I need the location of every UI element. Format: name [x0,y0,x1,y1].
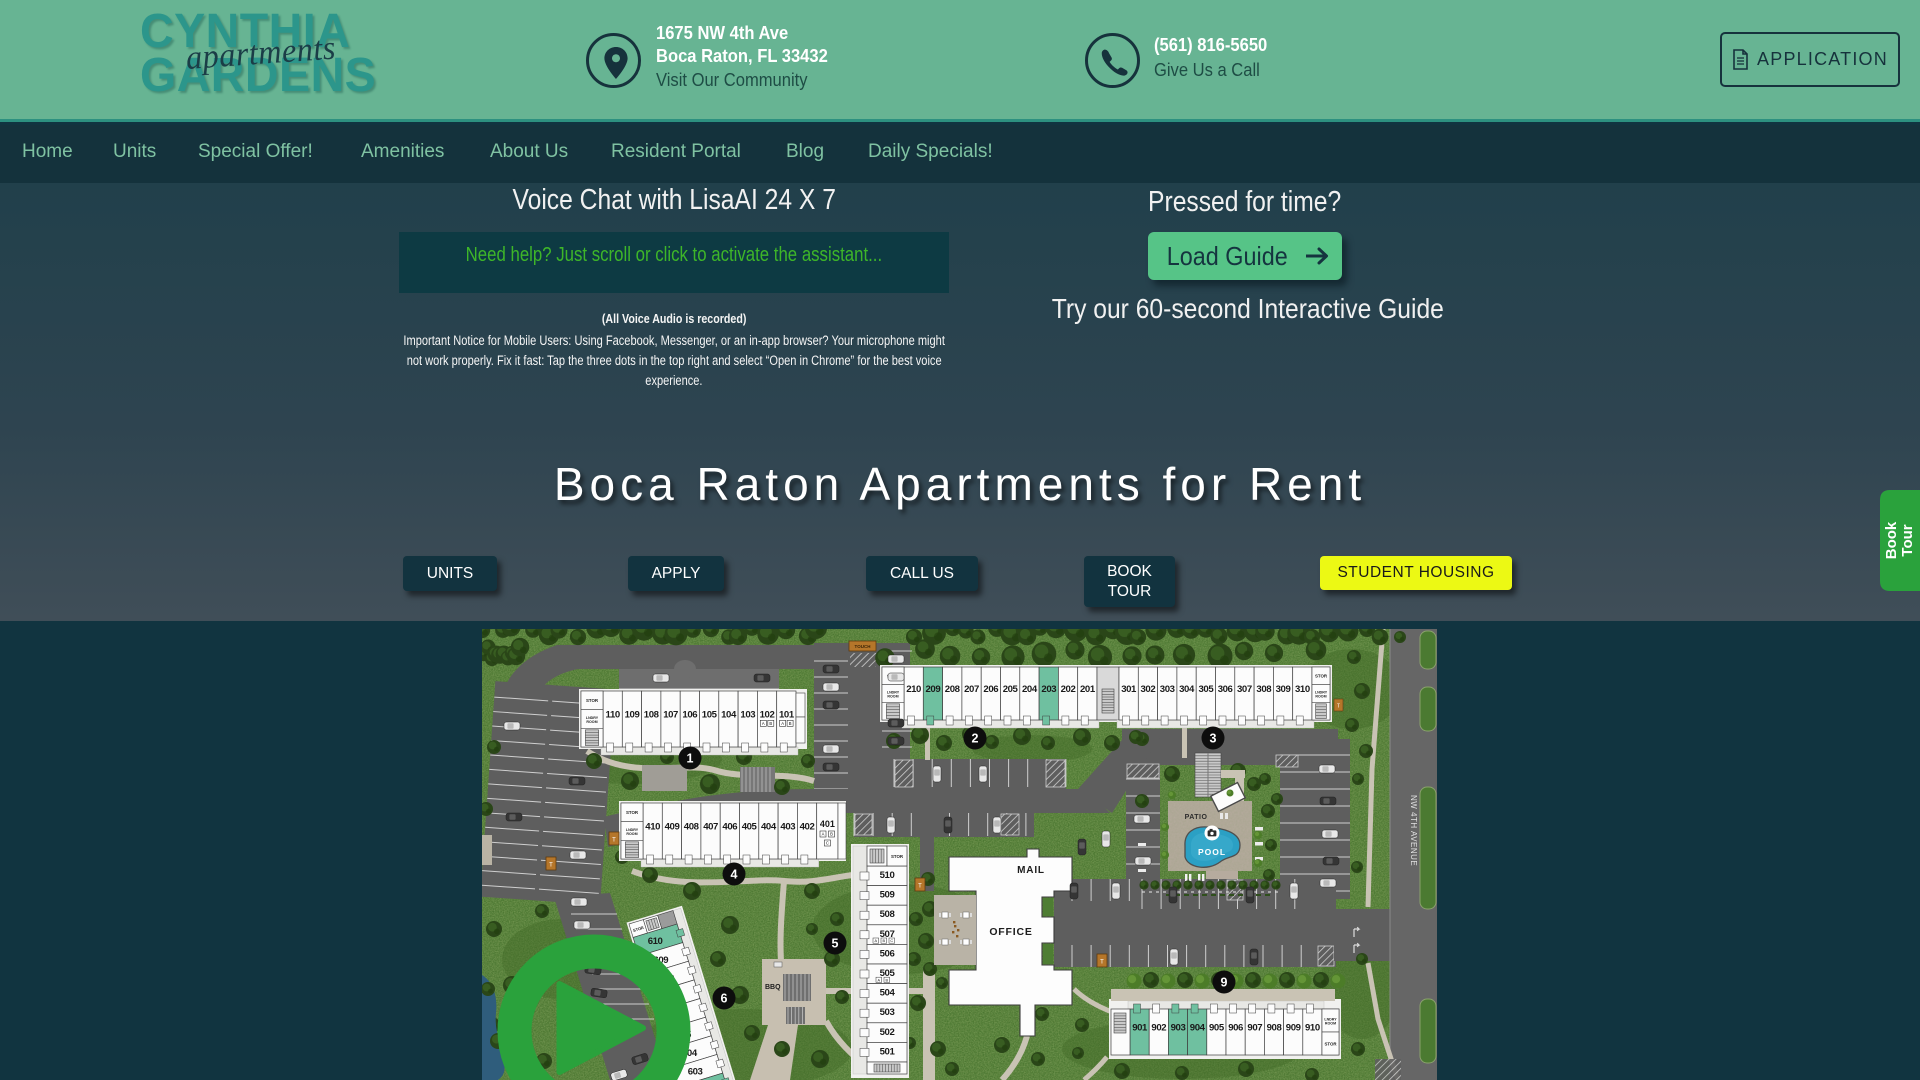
svg-text:303: 303 [1160,684,1175,695]
svg-text:STOR: STOR [626,810,639,815]
svg-text:B: B [886,978,889,982]
svg-text:501: 501 [880,1046,896,1057]
svg-text:104: 104 [721,709,737,720]
svg-text:6: 6 [721,992,728,1006]
svg-text:B: B [883,939,886,943]
svg-text:T: T [549,863,553,869]
svg-text:309: 309 [1276,684,1291,695]
svg-text:B: B [830,832,833,837]
svg-text:610: 610 [648,936,663,947]
svg-text:POOL: POOL [1198,847,1226,857]
svg-text:C: C [890,939,893,943]
svg-text:A: A [822,832,825,837]
svg-text:OFFICE: OFFICE [989,926,1032,938]
svg-text:110: 110 [606,709,620,720]
svg-text:NW 4TH AVENUE: NW 4TH AVENUE [1409,795,1418,866]
svg-text:202: 202 [1061,684,1076,695]
svg-text:910: 910 [1305,1023,1320,1034]
svg-text:304: 304 [1179,684,1195,695]
svg-text:410: 410 [645,821,660,832]
svg-text:506: 506 [880,948,895,959]
svg-text:ROOM: ROOM [1325,1022,1336,1026]
svg-text:209: 209 [925,684,940,695]
svg-text:906: 906 [1228,1023,1243,1034]
svg-text:TOUCH: TOUCH [855,644,871,649]
svg-text:504: 504 [880,988,896,999]
svg-text:307: 307 [1237,684,1252,695]
svg-text:107: 107 [663,709,678,720]
svg-text:306: 306 [1218,684,1233,695]
svg-text:102: 102 [760,709,775,720]
svg-text:302: 302 [1140,684,1155,695]
svg-text:510: 510 [880,870,895,881]
svg-text:103: 103 [740,709,755,720]
svg-text:407: 407 [703,821,718,832]
svg-text:108: 108 [644,709,660,720]
svg-text:2: 2 [972,732,979,746]
svg-text:203: 203 [1041,684,1056,695]
svg-text:403: 403 [780,821,795,832]
svg-text:Tour: Tour [1899,524,1916,556]
svg-text:310: 310 [1295,684,1310,695]
svg-text:T: T [1100,960,1104,966]
svg-text:207: 207 [964,684,979,695]
svg-text:308: 308 [1256,684,1272,695]
svg-text:PATIO: PATIO [1185,814,1208,821]
svg-text:ROOM: ROOM [586,720,597,724]
svg-text:503: 503 [880,1007,895,1018]
svg-text:STOR: STOR [1315,674,1328,679]
svg-text:C: C [826,841,829,846]
svg-text:STOR: STOR [1324,1041,1337,1046]
svg-text:Book: Book [1883,521,1900,559]
svg-text:ROOM: ROOM [626,832,637,836]
svg-text:ROOM: ROOM [1315,695,1326,699]
svg-text:STOR: STOR [586,698,599,703]
svg-text:909: 909 [1286,1023,1301,1034]
svg-text:305: 305 [1198,684,1214,695]
svg-text:105: 105 [702,709,718,720]
svg-text:MAIL: MAIL [1017,865,1045,876]
svg-text:902: 902 [1151,1023,1166,1034]
svg-text:509: 509 [880,890,895,901]
svg-text:508: 508 [880,909,896,920]
svg-text:STOR: STOR [891,854,904,859]
svg-text:1: 1 [687,752,694,766]
svg-text:T: T [918,884,922,890]
svg-text:406: 406 [722,821,737,832]
svg-text:210: 210 [906,684,921,695]
svg-text:205: 205 [1003,684,1019,695]
svg-text:603: 603 [688,1067,703,1078]
svg-text:101: 101 [779,709,795,720]
svg-text:401: 401 [820,819,835,829]
svg-text:3: 3 [1210,732,1217,746]
svg-text:409: 409 [665,821,680,832]
svg-text:904: 904 [1190,1023,1206,1034]
svg-text:A: A [781,721,784,726]
svg-text:4: 4 [731,868,738,882]
svg-text:206: 206 [983,684,998,695]
svg-text:402: 402 [800,821,815,832]
svg-text:B: B [789,721,792,726]
svg-text:5: 5 [832,937,839,951]
svg-text:905: 905 [1209,1023,1225,1034]
svg-text:404: 404 [761,821,777,832]
svg-text:408: 408 [684,821,700,832]
svg-text:BBQ: BBQ [765,984,781,991]
svg-text:T: T [1337,704,1340,710]
svg-text:502: 502 [880,1027,895,1038]
svg-text:907: 907 [1247,1023,1262,1034]
svg-text:A: A [875,939,878,943]
svg-text:908: 908 [1267,1023,1283,1034]
svg-text:B: B [769,721,772,726]
svg-text:301: 301 [1121,684,1137,695]
svg-text:109: 109 [625,709,640,720]
svg-text:T: T [612,838,616,844]
svg-text:901: 901 [1132,1023,1148,1034]
svg-text:9: 9 [1221,976,1228,990]
svg-text:A: A [762,721,765,726]
svg-text:A: A [878,978,881,982]
svg-text:201: 201 [1080,684,1096,695]
svg-text:208: 208 [945,684,961,695]
svg-text:204: 204 [1022,684,1038,695]
svg-text:106: 106 [682,709,697,720]
svg-text:405: 405 [742,821,758,832]
svg-text:ROOM: ROOM [887,695,898,699]
svg-text:903: 903 [1171,1023,1186,1034]
